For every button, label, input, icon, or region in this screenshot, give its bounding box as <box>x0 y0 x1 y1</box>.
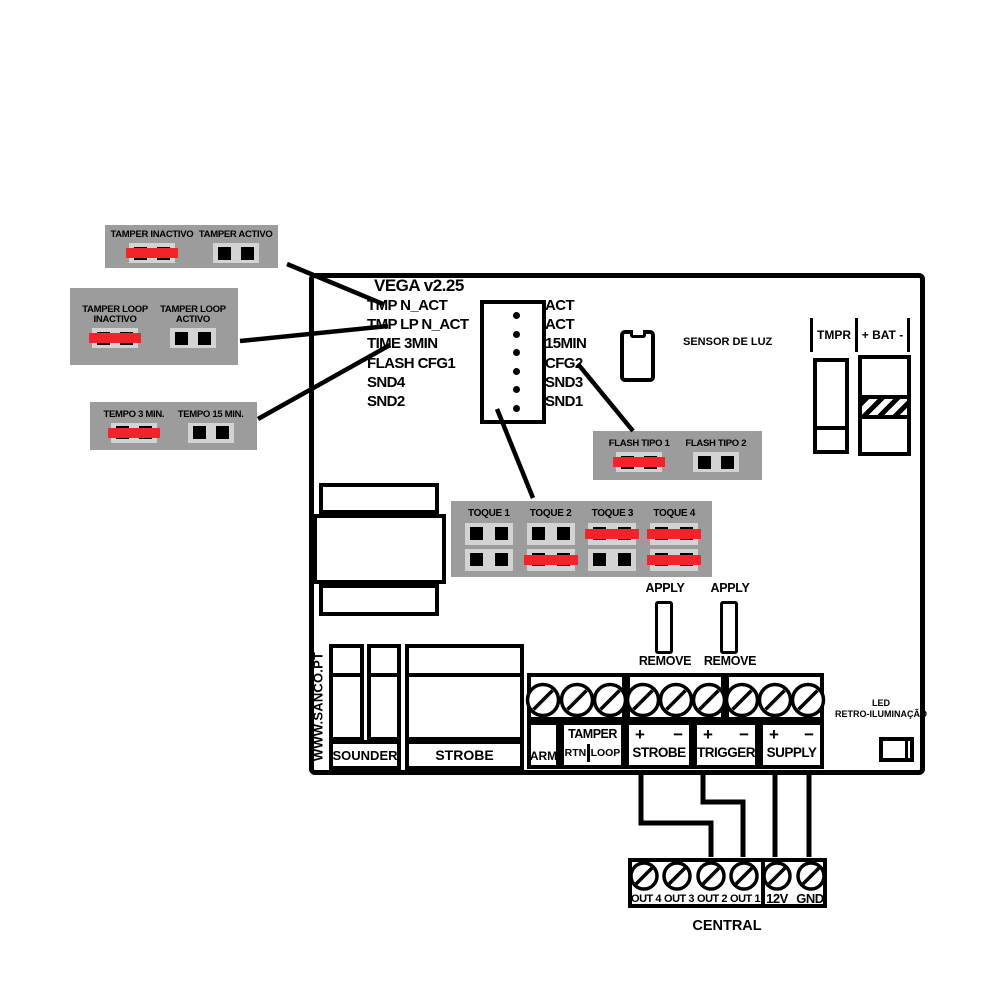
strobe-terminal-label: STROBE <box>629 745 689 760</box>
battery-connector <box>858 355 911 456</box>
jumper-pin <box>618 553 631 566</box>
divider <box>409 673 520 677</box>
jumper-pin <box>532 527 545 540</box>
toque-label: TOQUE 1 <box>468 508 510 519</box>
trigger-terminal-label: TRIGGER <box>697 745 755 760</box>
tempo-3min-option: TEMPO 3 MIN. <box>103 410 164 443</box>
jumper-pin <box>495 553 508 566</box>
jumper-shunt <box>647 555 701 565</box>
pin-header-left-labels: TMP N_ACT TMP LP N_ACT TIME 3MIN FLASH C… <box>367 296 482 411</box>
remove-label: REMOVE <box>637 654 693 668</box>
jumper-pin <box>698 456 711 469</box>
jumper <box>465 549 513 571</box>
pin-label: SND2 <box>367 392 482 411</box>
fuse-slot <box>655 601 673 654</box>
toque-config-box: TOQUE 1 TOQUE 2 TOQUE 3 TOQUE 4 <box>451 501 712 577</box>
option-label: FLASH TIPO 2 <box>685 439 746 449</box>
central-terminal-label: 12V <box>762 891 792 906</box>
option-label: TEMPO 15 MIN. <box>178 410 244 420</box>
pin-label: CFG2 <box>545 354 617 373</box>
tmpr-connector <box>813 358 849 454</box>
option-label: TEMPO 3 MIN. <box>103 410 164 420</box>
flash-config-box: FLASH TIPO 1 FLASH TIPO 2 <box>593 431 762 480</box>
jumper <box>188 423 234 443</box>
light-sensor-icon <box>620 330 655 382</box>
jumper-shunt <box>108 428 160 438</box>
pin-label: 15MIN <box>545 334 617 353</box>
header-pin-dot <box>513 386 520 393</box>
led-label-line2: RETRO-ILUMINAÇÃO <box>835 709 927 719</box>
divider <box>371 673 397 677</box>
loop-label: LOOP <box>591 747 621 759</box>
led-stripe <box>905 741 908 758</box>
rtn-label: RTN <box>565 747 587 759</box>
jumper-pin-header <box>480 300 546 424</box>
header-pin-dot <box>513 331 520 338</box>
jumper <box>693 452 739 472</box>
led-label: LED RETRO-ILUMINAÇÃO <box>835 698 927 720</box>
central-terminal-label: OUT 4 <box>629 893 663 905</box>
terminal-strip <box>725 673 824 721</box>
option-label-line2: INACTIVO <box>94 314 137 325</box>
divider <box>587 744 590 762</box>
trigger-terminal-box: +− TRIGGER <box>693 721 759 769</box>
jumper-pin <box>218 247 231 260</box>
jumper-shunt <box>647 529 701 539</box>
jumper-pin <box>193 426 206 439</box>
minus-label: − <box>673 726 683 743</box>
central-terminal-label: OUT 2 <box>695 893 729 905</box>
jumper-shunt <box>524 555 578 565</box>
bat-label: + BAT - <box>858 328 907 342</box>
led-label-line1: LED <box>872 698 890 708</box>
jumper <box>616 452 662 472</box>
jumper <box>465 523 513 545</box>
arm-terminal-box: ARM <box>527 721 560 769</box>
minus-label: − <box>739 726 749 743</box>
central-terminal-label: OUT 1 <box>728 893 762 905</box>
pin-label: TMP LP N_ACT <box>367 315 482 334</box>
option-label: FLASH TIPO 1 <box>609 439 670 449</box>
jumper-pin <box>470 527 483 540</box>
toque-3-column: TOQUE 3 <box>588 508 636 571</box>
sounder-connector <box>329 644 364 741</box>
pin-label: TIME 3MIN <box>367 334 482 353</box>
tamper-loop-inactive-option: TAMPER LOOPINACTIVO <box>82 305 148 348</box>
plus-label: + <box>769 726 779 743</box>
jumper-pin <box>593 553 606 566</box>
pin-label: ACT <box>545 296 617 315</box>
header-pin-dot <box>513 349 520 356</box>
wiring-diagram: TAMPER INACTIVO TAMPER ACTIVO TAMPER LOO… <box>0 0 1000 1000</box>
jumper <box>213 243 259 263</box>
supply-terminal-label: SUPPLY <box>763 745 820 760</box>
option-label: TAMPER ACTIVO <box>199 230 273 240</box>
pin-header-right-labels: ACT ACT 15MIN CFG2 SND3 SND1 <box>545 296 617 411</box>
pin-label: TMP N_ACT <box>367 296 482 315</box>
pin-label: SND4 <box>367 373 482 392</box>
central-title: CENTRAL <box>677 918 777 934</box>
pin-label: FLASH CFG1 <box>367 354 482 373</box>
strobe-label: STROBE <box>435 747 493 763</box>
jumper-pin <box>721 456 734 469</box>
toque-4-column: TOQUE 4 <box>650 508 698 571</box>
tamper-inactive-option: TAMPER INACTIVO <box>110 230 193 263</box>
jumper <box>650 549 698 571</box>
transformer-bottom <box>319 584 439 616</box>
jumper-pin <box>241 247 254 260</box>
terminal-strip <box>626 673 725 721</box>
tamper-config-box: TAMPER INACTIVO TAMPER ACTIVO <box>105 225 278 268</box>
toque-1-column: TOQUE 1 <box>465 508 513 571</box>
jumper <box>92 328 138 348</box>
tamper-label: TAMPER <box>564 727 621 741</box>
jumper-shunt <box>585 529 639 539</box>
remove-label: REMOVE <box>702 654 758 668</box>
sounder-label-box: SOUNDER <box>329 740 401 770</box>
toque-2-column: TOQUE 2 <box>527 508 575 571</box>
tempo-15min-option: TEMPO 15 MIN. <box>178 410 244 443</box>
jumper <box>170 328 216 348</box>
tamper-active-option: TAMPER ACTIVO <box>199 230 273 263</box>
jumper <box>588 523 636 545</box>
tamper-terminal-box: TAMPER RTN LOOP <box>560 721 625 769</box>
header-pin-dot <box>513 312 520 319</box>
jumper-pin <box>470 553 483 566</box>
toque-label: TOQUE 4 <box>653 508 695 519</box>
jumper-pin <box>495 527 508 540</box>
jumper <box>527 523 575 545</box>
strobe-terminal-box: +− STROBE <box>625 721 693 769</box>
tempo-config-box: TEMPO 3 MIN. TEMPO 15 MIN. <box>90 402 257 450</box>
jumper-pin <box>557 527 570 540</box>
jumper-pin <box>175 332 188 345</box>
central-terminal-label: GND <box>795 891 825 906</box>
battery-hatch-band <box>862 395 907 419</box>
tmpr-label: TMPR <box>813 328 855 342</box>
terminal-strip <box>527 673 626 721</box>
header-pin-dot <box>513 405 520 412</box>
jumper <box>588 549 636 571</box>
fuse-slot <box>720 601 738 654</box>
sensor-label: SENSOR DE LUZ <box>683 336 772 348</box>
option-label: TAMPER INACTIVO <box>110 230 193 240</box>
jumper-shunt <box>126 248 178 258</box>
header-pin-dot <box>513 368 520 375</box>
board-title: VEGA v2.25 <box>374 276 464 296</box>
led-component <box>879 737 914 762</box>
wires-to-central <box>641 774 809 857</box>
apply-label: APPLY <box>640 581 690 595</box>
option-label-line2: ACTIVO <box>176 314 210 325</box>
supply-terminal-box: +− SUPPLY <box>759 721 824 769</box>
strobe-label-box: STROBE <box>405 740 524 770</box>
jumper-shunt <box>89 333 141 343</box>
divider <box>817 426 845 430</box>
pin-label: SND3 <box>545 373 617 392</box>
flash-tipo2-option: FLASH TIPO 2 <box>685 439 746 472</box>
jumper <box>129 243 175 263</box>
jumper-shunt <box>613 457 665 467</box>
plus-label: + <box>703 726 713 743</box>
website-label: WWW.SANCO.PT <box>311 651 326 763</box>
divider <box>907 318 910 352</box>
transformer-body <box>313 514 446 584</box>
pin-label: ACT <box>545 315 617 334</box>
jumper <box>527 549 575 571</box>
flash-tipo1-option: FLASH TIPO 1 <box>609 439 670 472</box>
jumper-pin <box>198 332 211 345</box>
sensor-notch <box>630 330 646 338</box>
jumper <box>111 423 157 443</box>
tamper-loop-config-box: TAMPER LOOPINACTIVO TAMPER LOOPACTIVO <box>70 288 238 365</box>
sounder-label: SOUNDER <box>333 748 398 763</box>
plus-label: + <box>635 726 645 743</box>
apply-label: APPLY <box>705 581 755 595</box>
central-terminal-label: OUT 3 <box>662 893 696 905</box>
jumper-pin <box>216 426 229 439</box>
divider <box>333 673 360 677</box>
toque-label: TOQUE 3 <box>592 508 634 519</box>
strobe-connector <box>405 644 524 741</box>
jumper <box>650 523 698 545</box>
minus-label: − <box>804 726 814 743</box>
pin-label: SND1 <box>545 392 617 411</box>
tamper-loop-active-option: TAMPER LOOPACTIVO <box>160 305 226 348</box>
arm-label: ARM <box>530 749 557 763</box>
transformer-top <box>319 483 439 514</box>
toque-label: TOQUE 2 <box>530 508 572 519</box>
sounder-connector <box>367 644 401 741</box>
